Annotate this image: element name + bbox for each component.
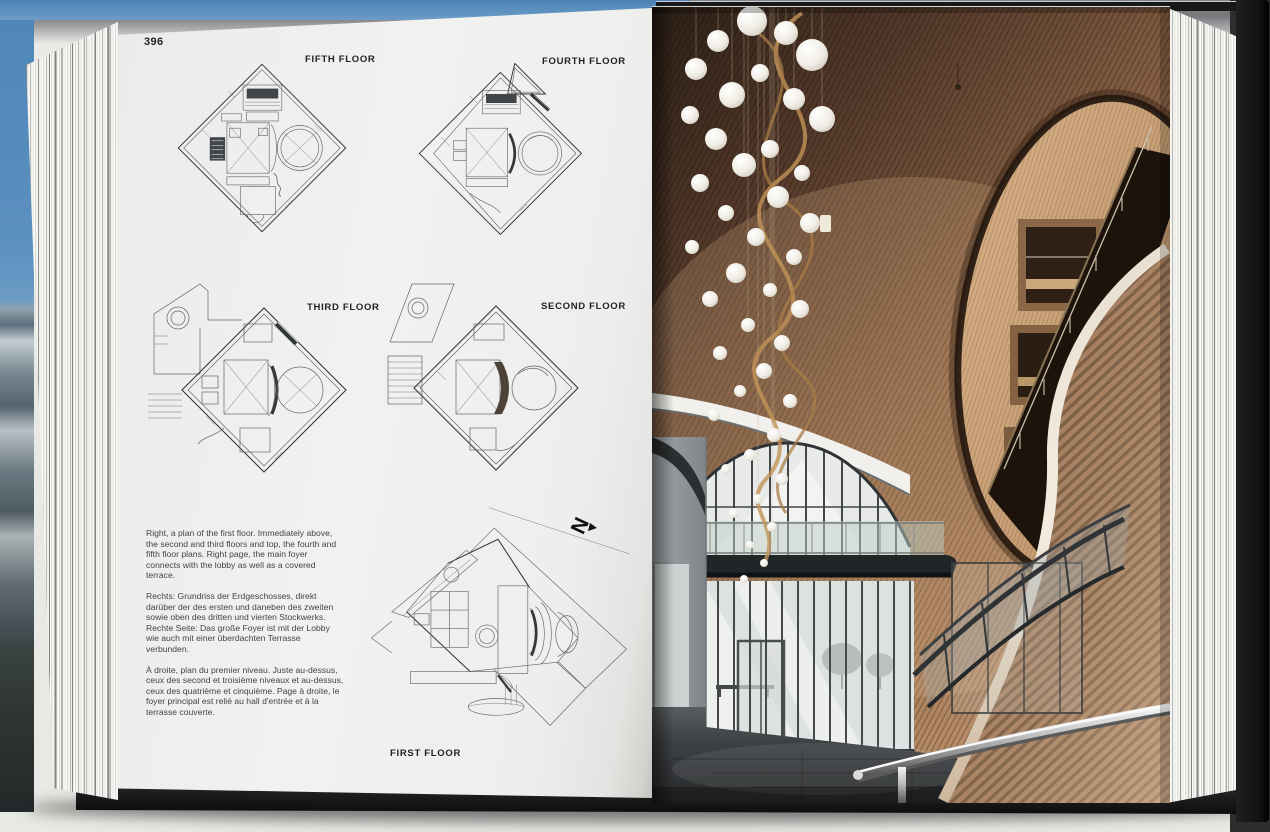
page-stack-right — [1168, 4, 1236, 806]
floor-plan-third — [144, 276, 349, 488]
floor-plan-fifth — [172, 58, 352, 238]
svg-text:N: N — [565, 514, 592, 537]
floor-plan-first — [352, 502, 644, 746]
page-number: 396 — [144, 36, 164, 48]
floor-plan-fourth — [414, 58, 594, 238]
caption-german: Rechts: Grundriss der Erdgeschosses, dir… — [146, 591, 344, 655]
caption-english: Right, a plan of the first floor. Immedi… — [146, 528, 344, 581]
north-arrow-icon: N — [562, 514, 600, 548]
caption-french: À droite, plan du premier niveau. Juste … — [146, 665, 344, 718]
glass-wall-lower — [702, 581, 914, 751]
foyer-photo — [652, 7, 1170, 803]
book-cover-right — [1236, 0, 1269, 822]
gutter-shadow — [652, 7, 674, 803]
left-page: 396 FIFTH FLOOR FOURTH FLOOR THIRD FLOOR… — [118, 8, 652, 798]
right-page-foyer-photo — [652, 6, 1170, 803]
floor-plan-label-first: FIRST FLOOR — [390, 748, 461, 759]
floor-plan-second — [382, 276, 580, 488]
caption-block: Right, a plan of the first floor. Immedi… — [146, 528, 344, 728]
page-stack-left — [26, 14, 118, 800]
